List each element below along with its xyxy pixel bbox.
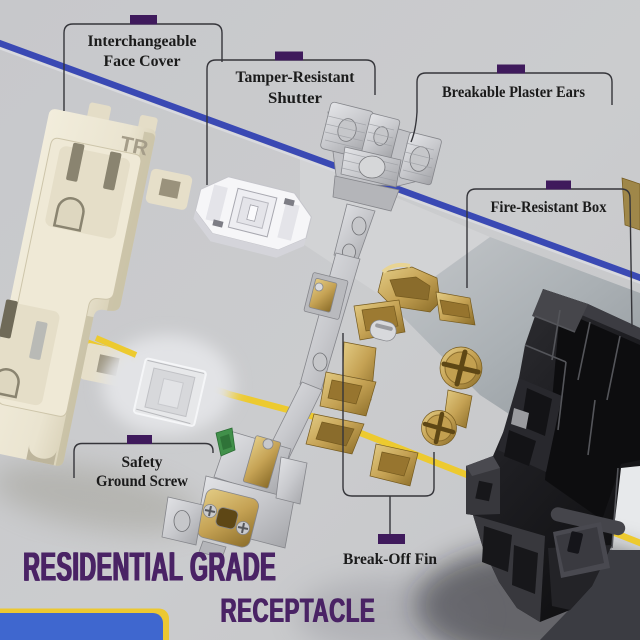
svg-text:Ground Screw: Ground Screw [96,473,189,490]
svg-text:Fire-Resistant Box: Fire-Resistant Box [491,199,607,216]
svg-text:Safety: Safety [122,454,163,471]
svg-text:Face Cover: Face Cover [104,53,181,70]
svg-text:Break-Off Fin: Break-Off Fin [343,551,437,568]
svg-text:RECEPTACLE: RECEPTACLE [221,592,376,630]
svg-text:Tamper-Resistant: Tamper-Resistant [236,69,356,86]
svg-text:Breakable Plaster Ears: Breakable Plaster Ears [442,84,585,101]
svg-text:Interchangeable: Interchangeable [88,33,197,50]
svg-text:RESIDENTIAL GRADE: RESIDENTIAL GRADE [24,544,277,589]
svg-text:Shutter: Shutter [268,90,322,107]
